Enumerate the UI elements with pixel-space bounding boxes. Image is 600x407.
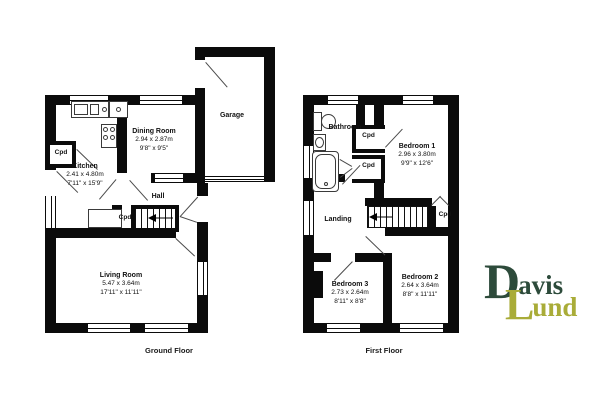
living-window-bottom-2 <box>145 323 188 333</box>
garage-top-wall <box>195 47 275 57</box>
stairs-cupboard-label: Cpd <box>433 211 457 219</box>
hob-ring-3 <box>103 135 108 140</box>
kitchen-cupboard-label: Cpd <box>49 149 73 157</box>
bedroom3-label: Bedroom 3 2.73 x 2.64m 8'11" x 8'8" <box>310 280 390 306</box>
front-door-opening <box>197 196 208 222</box>
gf-stairs-up-arrow <box>148 214 174 222</box>
dining-label: Dining Room 2.94 x 2.87m 9'8" x 9'5" <box>116 127 192 153</box>
davis-lund-logo: Davis Lund <box>484 256 596 336</box>
ff-window-top-2 <box>403 95 433 105</box>
kitchen-name: Kitchen <box>45 162 125 171</box>
logo-line-lund: Lund <box>505 283 579 327</box>
ff-cupboard-2-door-a <box>340 159 353 167</box>
bedroom1-label: Bedroom 1 2.96 x 3.80m 9'9" x 12'6" <box>377 142 457 168</box>
kitchen-sink-tap <box>102 107 107 112</box>
logo-letter-l: L <box>505 280 534 329</box>
kitchen-sink-bowl-1 <box>74 104 88 115</box>
kitchen-label: Kitchen 2.41 x 4.80m 7'11" x 15'9" <box>45 162 125 188</box>
garage-door-opening <box>195 60 205 88</box>
garage-label: Garage <box>197 111 267 120</box>
front-door-swing-b <box>180 216 197 223</box>
gf-left-window <box>45 196 56 228</box>
living-window-bottom-1 <box>88 323 130 333</box>
living-name: Living Room <box>76 271 166 280</box>
bedroom2-imperial: 8'8" x 11'11" <box>380 291 460 300</box>
basin-bowl <box>315 137 324 148</box>
garage-door-line <box>205 176 264 182</box>
bedroom3-window <box>327 323 360 333</box>
living-window-right <box>197 262 208 295</box>
dining-name: Dining Room <box>116 127 192 136</box>
bathroom-label: Bathroom <box>315 123 375 132</box>
landing-name: Landing <box>310 215 366 224</box>
bedroom1-metric: 2.96 x 3.80m <box>377 151 457 160</box>
bedroom3-top-wall-a <box>303 253 331 262</box>
floorplan-page: Cpd Cpd Kitchen 2.41 x 4.80m 7'11" x 15'… <box>0 0 600 407</box>
bedroom2-window <box>400 323 443 333</box>
hall-name: Hall <box>133 192 183 201</box>
living-metric: 5.47 x 3.64m <box>76 280 166 289</box>
first-floor-label: First Floor <box>334 346 434 355</box>
bedroom2-label: Bedroom 2 2.64 x 3.64m 8'8" x 11'11" <box>380 273 460 299</box>
bedroom3-name: Bedroom 3 <box>310 280 390 289</box>
bedroom1-left-wall-upper <box>374 104 384 127</box>
bedroom2-metric: 2.64 x 3.64m <box>380 282 460 291</box>
stairwell-top-wall <box>365 198 432 206</box>
living-imperial: 17'11" x 11'11" <box>76 289 166 298</box>
hob-ring-4 <box>110 135 115 140</box>
ff-cupboard-1-label: Cpd <box>355 132 382 140</box>
kitchen-drainer-dot <box>116 107 121 112</box>
ff-window-top-1 <box>328 95 358 105</box>
dining-metric: 2.94 x 2.87m <box>116 136 192 145</box>
hall-label: Hall <box>133 192 183 201</box>
ground-floor-label: Ground Floor <box>119 346 219 355</box>
dining-imperial: 9'8" x 9'5" <box>116 145 192 154</box>
garage-door-swing <box>205 62 227 88</box>
landing-label: Landing <box>310 215 366 224</box>
hob-ring-1 <box>103 127 108 132</box>
bedroom1-name: Bedroom 1 <box>377 142 457 151</box>
bathtub-drain <box>324 182 328 186</box>
living-label: Living Room 5.47 x 3.64m 17'11" x 11'11" <box>76 271 166 297</box>
logo-text-und: und <box>532 292 577 322</box>
kitchen-metric: 2.41 x 4.80m <box>45 171 125 180</box>
dining-hall-window <box>155 173 183 183</box>
living-door-swing <box>175 238 195 256</box>
kitchen-sink-bowl-2 <box>90 104 99 115</box>
dining-window-top <box>140 95 182 105</box>
bedroom2-top-wall <box>385 227 459 236</box>
bedroom1-imperial: 9'9" x 12'6" <box>377 160 457 169</box>
bathroom-name: Bathroom <box>315 123 375 132</box>
garage-name: Garage <box>197 111 267 120</box>
hob-ring-2 <box>110 127 115 132</box>
bedroom3-top-wall-b <box>355 253 392 262</box>
bedroom3-imperial: 8'11" x 8'8" <box>310 298 390 307</box>
bedroom3-door-swing <box>334 261 353 280</box>
kitchen-imperial: 7'11" x 15'9" <box>45 180 125 189</box>
ff-stairs-arrow <box>369 213 393 221</box>
bedroom3-metric: 2.73 x 2.64m <box>310 289 390 298</box>
bedroom2-name: Bedroom 2 <box>380 273 460 282</box>
